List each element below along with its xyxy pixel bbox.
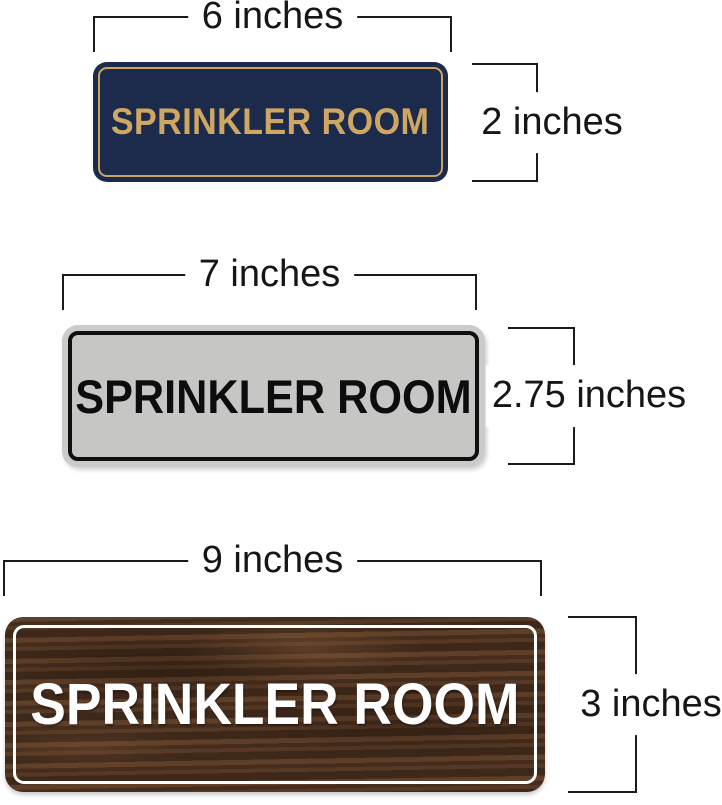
dimension-tick-left	[93, 16, 95, 52]
height-dimension-label: 3 inches	[574, 674, 722, 736]
dimension-tick-right	[450, 16, 452, 52]
sign-text: SPRINKLER ROOM	[93, 62, 448, 182]
sign-text-inner: SPRINKLER ROOM	[30, 671, 519, 738]
sign-text-inner: SPRINKLER ROOM	[111, 101, 429, 143]
dimension-stub-bottom	[472, 180, 538, 182]
width-dimension-label: 9 inches	[188, 539, 358, 583]
dimension-tick-right	[475, 274, 477, 310]
sign-text: SPRINKLER ROOM	[5, 617, 545, 792]
width-dimension-label: 7 inches	[185, 253, 355, 297]
sign-walnut-wood: SPRINKLER ROOM	[5, 617, 545, 792]
sign-navy-gold: SPRINKLER ROOM	[93, 62, 448, 182]
sign-text: SPRINKLER ROOM	[62, 325, 485, 467]
height-dimension-label: 2 inches	[475, 92, 629, 154]
width-dimension-label: 6 inches	[188, 0, 358, 39]
dimension-stub-top	[568, 616, 637, 618]
sign-silver-black: SPRINKLER ROOM	[62, 325, 485, 467]
height-dimension-bracket-navy: 2 inches	[472, 63, 538, 182]
dimension-stub-bottom	[568, 791, 637, 793]
dimension-stub-top	[508, 327, 575, 329]
dimension-stub-top	[472, 63, 538, 65]
dimension-tick-left	[3, 560, 5, 596]
height-dimension-label: 2.75 inches	[486, 365, 692, 427]
dimension-tick-left	[62, 274, 64, 310]
dimension-tick-right	[540, 560, 542, 596]
height-dimension-bracket-silver: 2.75 inches	[508, 327, 575, 465]
height-dimension-bracket-wood: 3 inches	[568, 616, 637, 793]
dimension-stub-bottom	[508, 463, 575, 465]
sign-text-inner: SPRINKLER ROOM	[75, 369, 471, 424]
product-dimensions-diagram: 6 inches SPRINKLER ROOM 2 inches 7 inche…	[0, 0, 722, 805]
